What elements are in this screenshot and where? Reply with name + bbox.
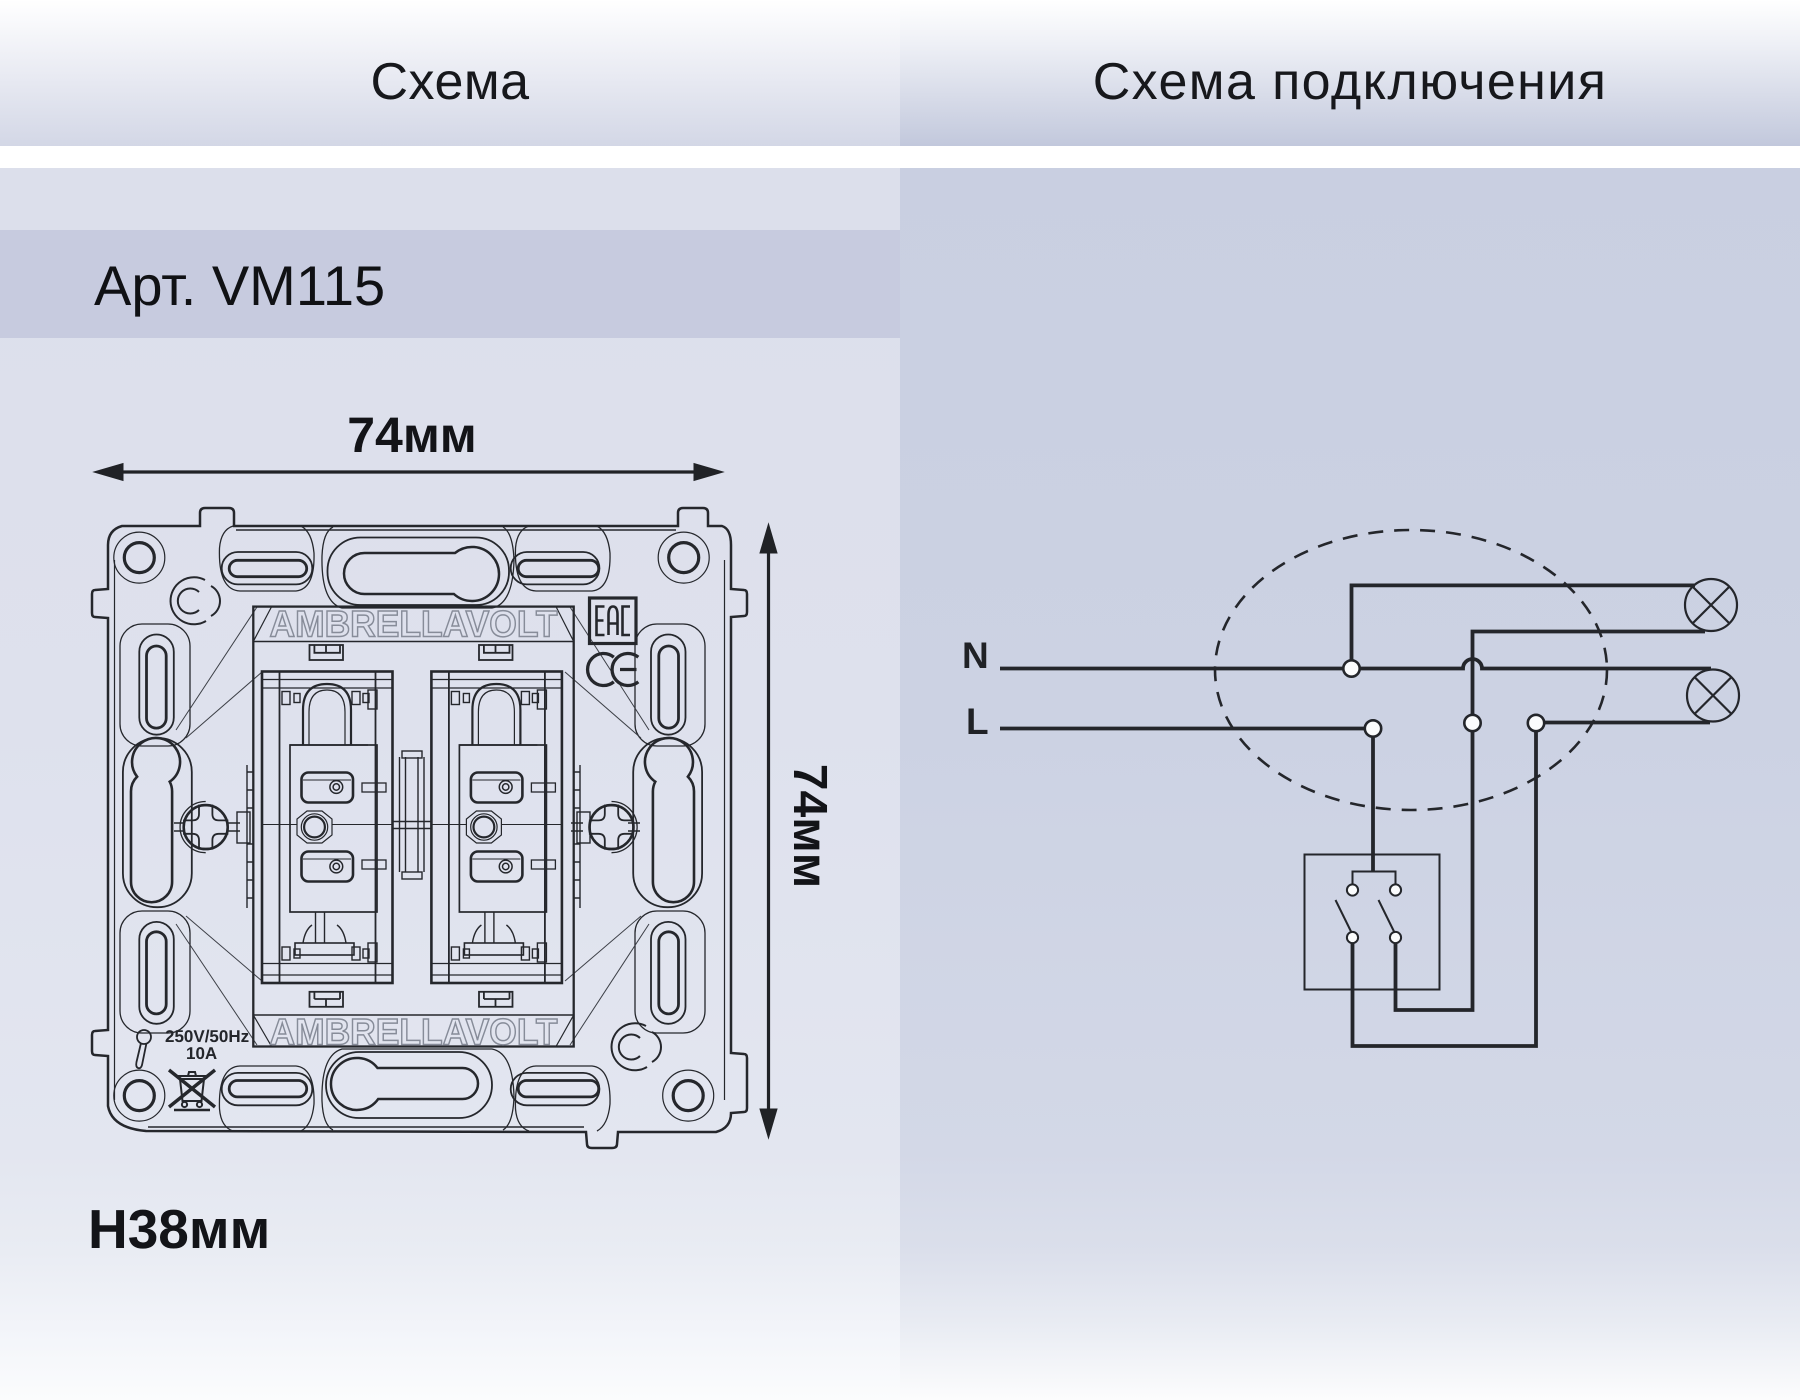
svg-text:AMBRELLAVOLT: AMBRELLAVOLT [270, 1012, 558, 1053]
svg-text:H38мм: H38мм [88, 1198, 270, 1260]
svg-text:74мм: 74мм [783, 764, 836, 888]
svg-text:AMBRELLAVOLT: AMBRELLAVOLT [270, 604, 558, 645]
svg-text:10A: 10A [186, 1044, 217, 1063]
svg-text:L: L [966, 701, 989, 742]
svg-text:N: N [962, 635, 989, 676]
svg-text:74мм: 74мм [347, 407, 477, 463]
